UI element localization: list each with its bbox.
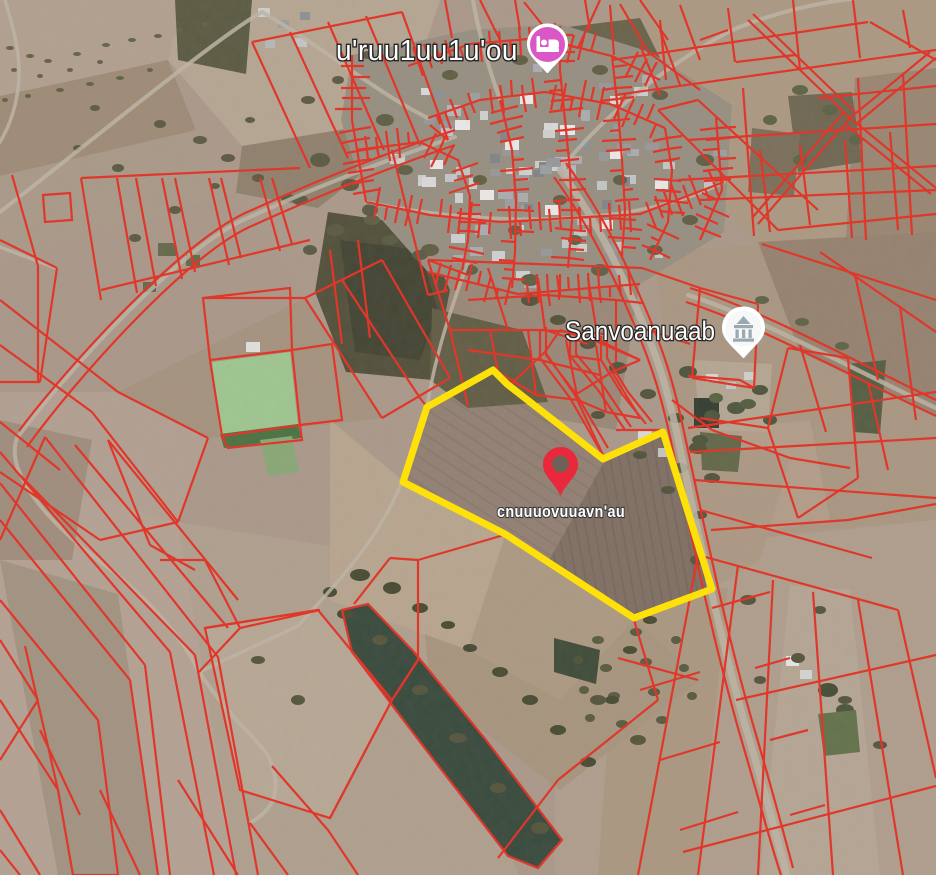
svg-text:cnuuuovuuavn'au: cnuuuovuuavn'au [497, 502, 625, 521]
svg-text:u'ruu1uu1u'ou: u'ruu1uu1u'ou [336, 35, 518, 67]
svg-text:Sanvoanuaab: Sanvoanuaab [565, 316, 715, 346]
